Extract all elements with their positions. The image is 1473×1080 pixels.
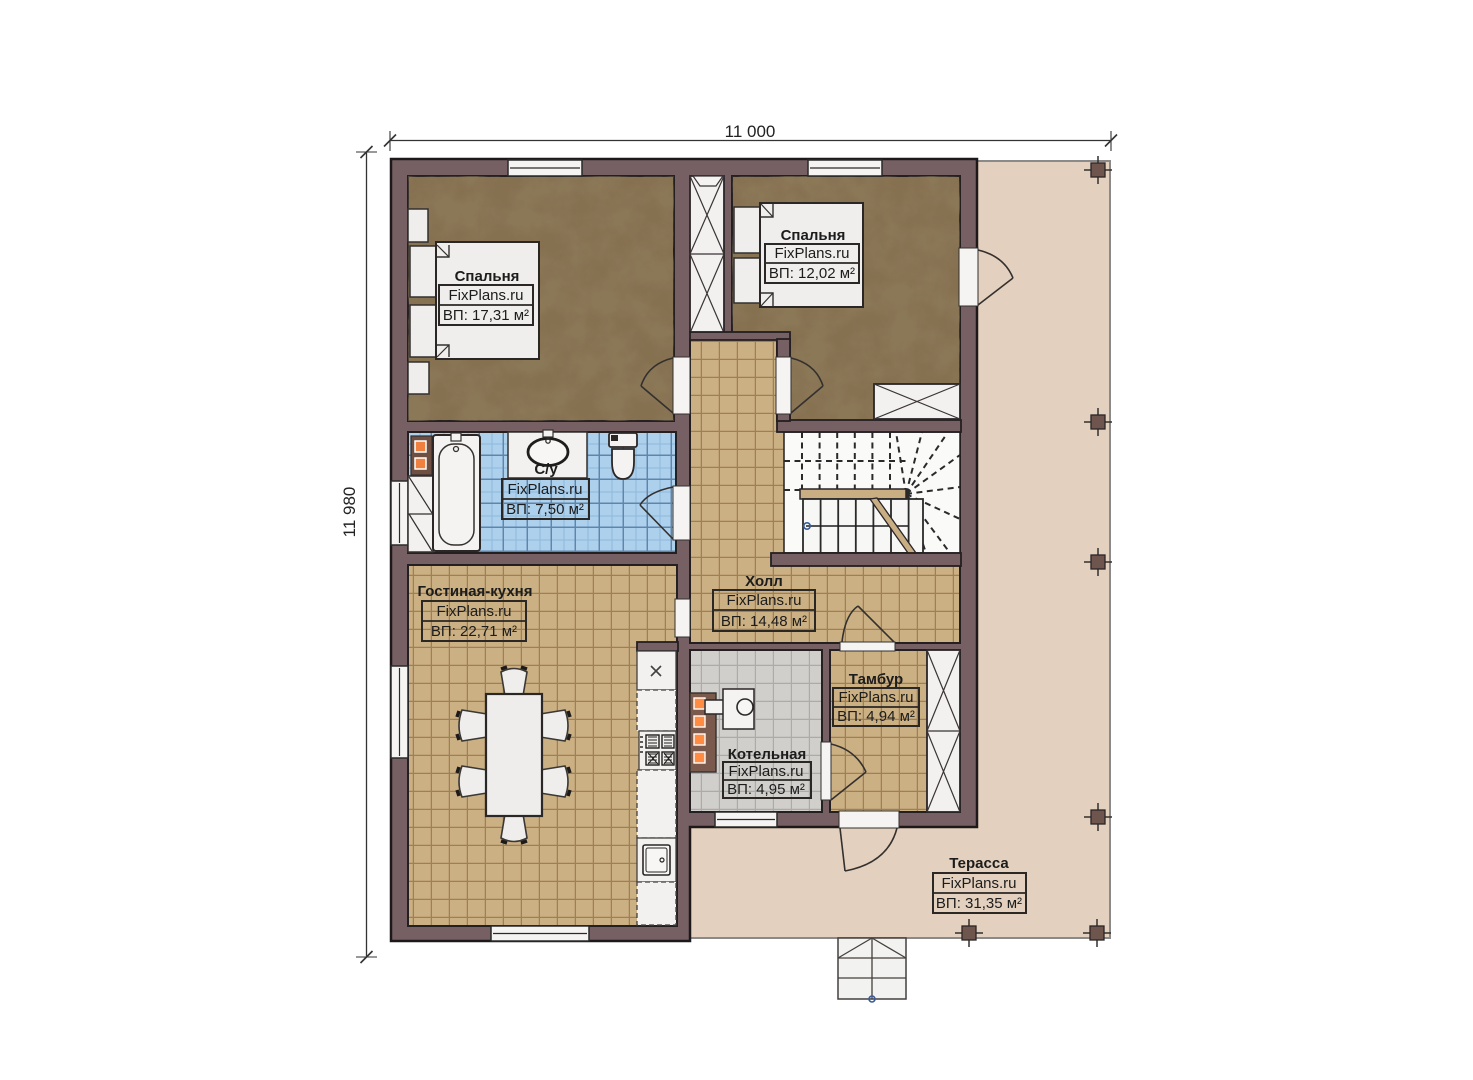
svg-text:FixPlans.ru: FixPlans.ru (436, 603, 511, 620)
svg-text:Тамбур: Тамбур (849, 671, 903, 688)
svg-text:Терасса: Терасса (949, 855, 1009, 872)
svg-text:11 980: 11 980 (340, 487, 359, 538)
svg-text:FixPlans.ru: FixPlans.ru (448, 287, 523, 304)
svg-text:FixPlans.ru: FixPlans.ru (726, 592, 801, 609)
svg-text:FixPlans.ru: FixPlans.ru (728, 763, 803, 780)
svg-text:FixPlans.ru: FixPlans.ru (941, 875, 1016, 892)
svg-text:11 000: 11 000 (725, 122, 776, 141)
svg-text:ВП: 4,94 м²: ВП: 4,94 м² (837, 708, 915, 725)
svg-text:FixPlans.ru: FixPlans.ru (838, 689, 913, 706)
svg-text:ВП: 22,71 м²: ВП: 22,71 м² (431, 623, 517, 640)
svg-text:ВП: 12,02 м²: ВП: 12,02 м² (769, 265, 855, 282)
svg-text:С/у: С/у (534, 461, 558, 478)
svg-text:ВП: 4,95 м²: ВП: 4,95 м² (727, 781, 805, 798)
svg-text:Холл: Холл (745, 573, 783, 590)
svg-text:Котельная: Котельная (728, 746, 807, 763)
svg-text:FixPlans.ru: FixPlans.ru (774, 245, 849, 262)
svg-text:Спальня: Спальня (455, 268, 520, 285)
svg-text:ВП: 31,35 м²: ВП: 31,35 м² (936, 895, 1022, 912)
svg-text:ВП: 14,48 м²: ВП: 14,48 м² (721, 613, 807, 630)
svg-text:Спальня: Спальня (781, 227, 846, 244)
svg-text:FixPlans.ru: FixPlans.ru (507, 481, 582, 498)
svg-text:ВП: 17,31 м²: ВП: 17,31 м² (443, 307, 529, 324)
svg-text:ВП: 7,50 м²: ВП: 7,50 м² (506, 501, 584, 518)
svg-text:Гостиная-кухня: Гостиная-кухня (418, 583, 533, 600)
